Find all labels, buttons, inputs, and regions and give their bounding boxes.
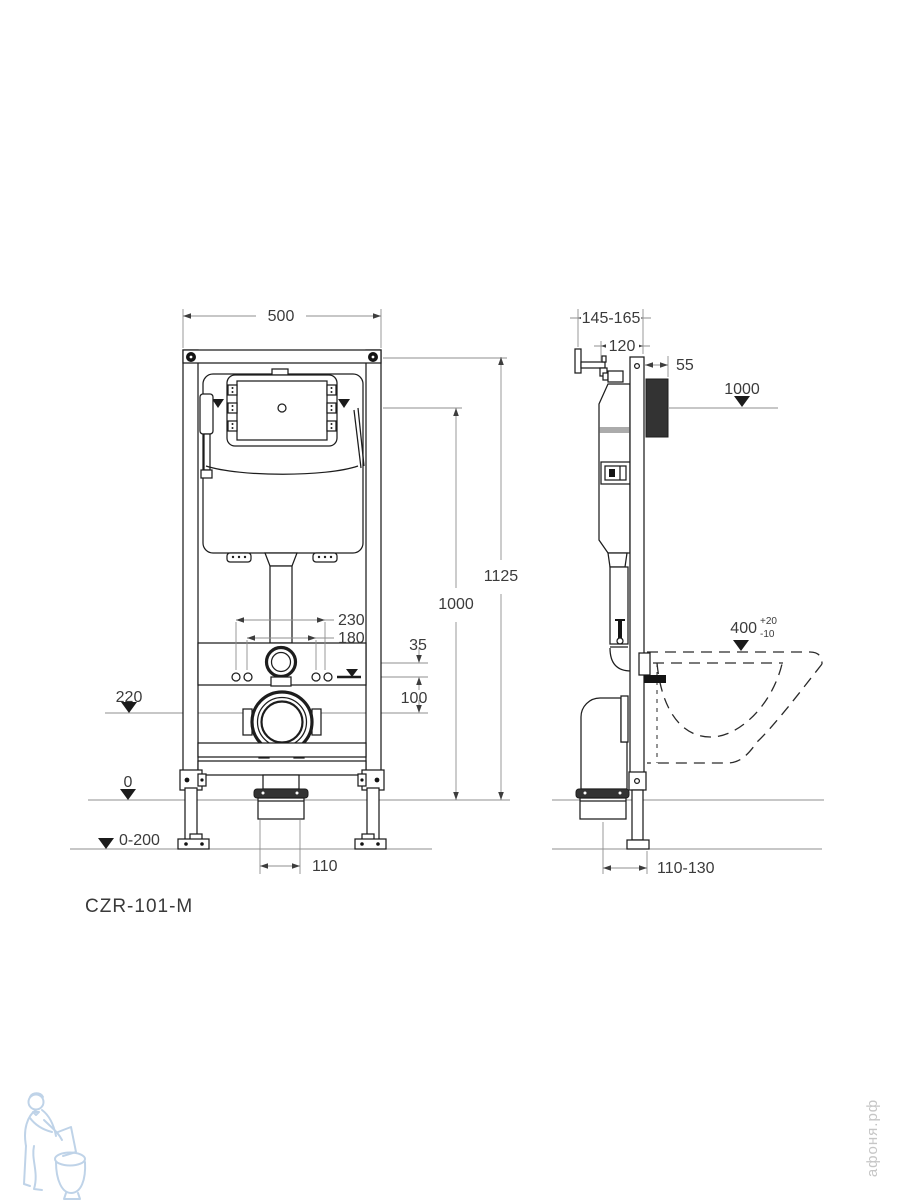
leg — [632, 790, 643, 840]
dim-plate-depth: 55 — [676, 357, 694, 374]
dim-floor-level: 0 — [124, 774, 133, 791]
front-view — [178, 350, 386, 849]
flush-plate-box — [646, 379, 668, 437]
cistern-top-tab — [272, 369, 288, 375]
side-cistern — [599, 371, 631, 671]
side-view — [575, 349, 822, 849]
flush-elbow — [610, 648, 631, 671]
dim-outlet-width: 110 — [312, 858, 338, 875]
dim-button-height: 1000 — [438, 596, 474, 613]
access-panel — [237, 381, 327, 440]
front-flush-pipe — [265, 553, 297, 643]
dim-outlet-distance: 110-130 — [657, 860, 715, 877]
model-label: CZR-101-M — [85, 896, 193, 917]
toilet-bowl-outline — [639, 652, 822, 763]
bowl-bracket — [639, 653, 650, 675]
dim-flush-offset: 35 — [409, 637, 427, 654]
drawing-svg: 500 1125 1000 230 180 35 — [0, 0, 899, 1200]
dim-overall-height: 1125 — [484, 568, 519, 585]
foot-plate — [627, 840, 649, 849]
leg — [185, 788, 197, 840]
dim-panel-height: 1000 — [724, 381, 760, 398]
dim-rod-outer: 230 — [338, 612, 365, 629]
front-outlet — [254, 775, 308, 819]
watermark-site: афоня.рф — [864, 1099, 881, 1177]
installation-frame-drawing: 500 1125 1000 230 180 35 — [0, 0, 899, 1200]
dim-width: 500 — [268, 308, 295, 325]
dim-bowl-height: 400 — [730, 620, 757, 637]
dim-frame-depth: 120 — [609, 338, 636, 355]
foot-plate — [178, 839, 209, 849]
dim-rod-inner: 180 — [338, 630, 365, 647]
front-cistern — [200, 369, 364, 562]
front-lower-rails — [198, 743, 366, 775]
leg — [367, 788, 379, 840]
dim-bowl-tol-up: +20 — [760, 616, 777, 627]
elbow-flange — [621, 696, 628, 742]
adjust-pin — [618, 621, 622, 638]
wall-bracket — [575, 349, 607, 376]
dim-drain-offset: 100 — [401, 690, 428, 707]
dim-depth: 145-165 — [582, 310, 641, 327]
dim-bowl-tol-down: -10 — [760, 629, 775, 640]
plumber-logo-watermark — [24, 1093, 85, 1199]
dim-leg-adjustment: 0-200 — [119, 832, 160, 849]
flush-bend-bracket — [271, 677, 291, 686]
flush-bend-collar — [267, 648, 296, 677]
front-upper-rail — [198, 643, 366, 686]
seal-band — [600, 427, 630, 433]
side-drain-elbow — [576, 696, 629, 819]
leg-clamp — [629, 772, 646, 790]
foot-plate — [355, 839, 386, 849]
mounting-pin — [644, 675, 666, 683]
